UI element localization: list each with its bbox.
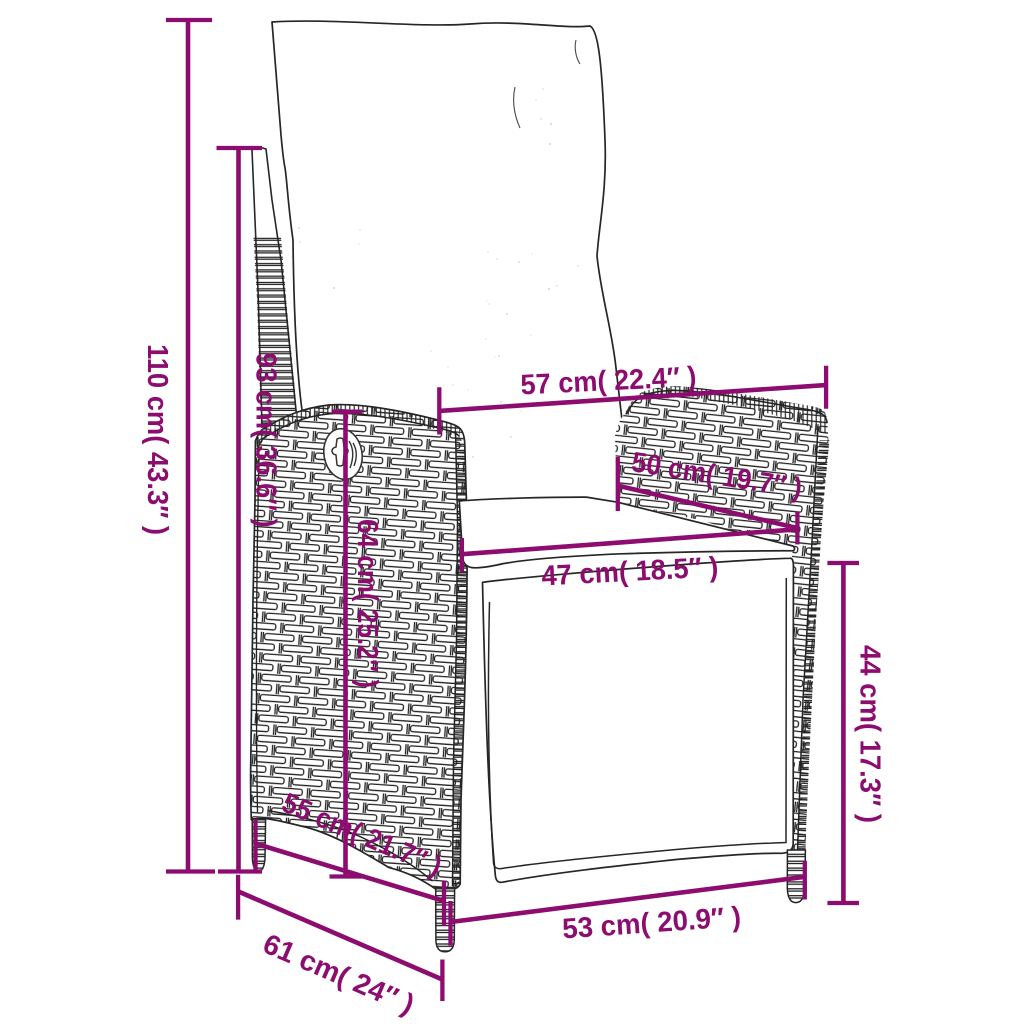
svg-text:53 cm( 20.9″ ): 53 cm( 20.9″ ) [561,901,742,945]
svg-text:93 cm( 36.6″ ): 93 cm( 36.6″ ) [250,353,282,528]
svg-text:110 cm( 43.3″ ): 110 cm( 43.3″ ) [141,344,173,535]
svg-text:64 cm( 25.2″ ): 64 cm( 25.2″ ) [351,519,383,688]
svg-text:44 cm( 17.3″ ): 44 cm( 17.3″ ) [854,645,886,823]
svg-text:61 cm( 24″ ): 61 cm( 24″ ) [258,928,419,1021]
